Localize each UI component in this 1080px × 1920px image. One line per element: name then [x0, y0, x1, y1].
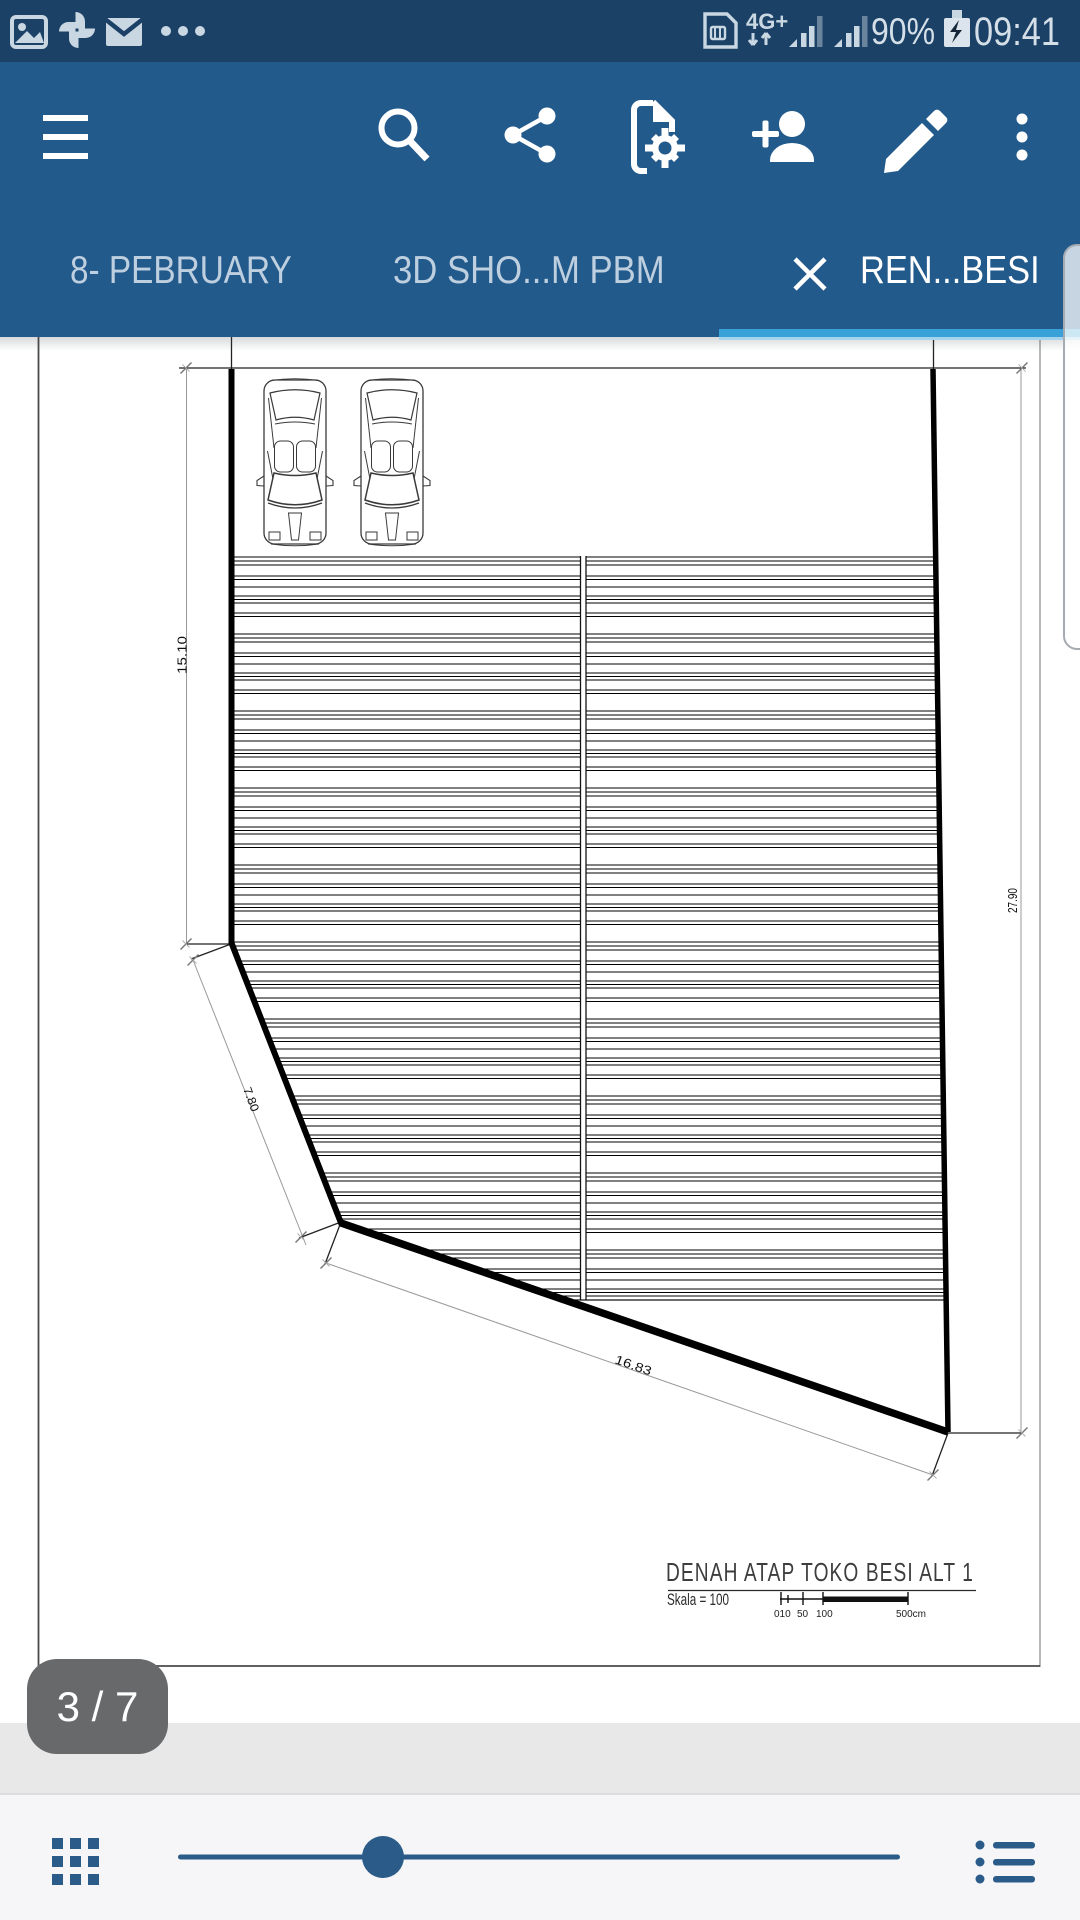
svg-text:50: 50	[797, 1609, 809, 1620]
svg-text:7.80: 7.80	[240, 1085, 262, 1114]
svg-text:90%: 90%	[871, 11, 935, 52]
svg-text:010: 010	[774, 1609, 791, 1620]
svg-text:16.83: 16.83	[613, 1353, 654, 1379]
svg-text:100: 100	[816, 1609, 833, 1620]
svg-text:27.90: 27.90	[1005, 888, 1020, 913]
svg-text:Skala = 100: Skala = 100	[667, 1590, 729, 1609]
svg-text:15.10: 15.10	[175, 636, 190, 674]
svg-text:09:41: 09:41	[974, 10, 1060, 54]
svg-text:500cm: 500cm	[896, 1609, 926, 1620]
svg-text:DENAH ATAP TOKO BESI ALT 1: DENAH ATAP TOKO BESI ALT 1	[666, 1557, 974, 1587]
svg-text:4G+: 4G+	[746, 9, 788, 34]
